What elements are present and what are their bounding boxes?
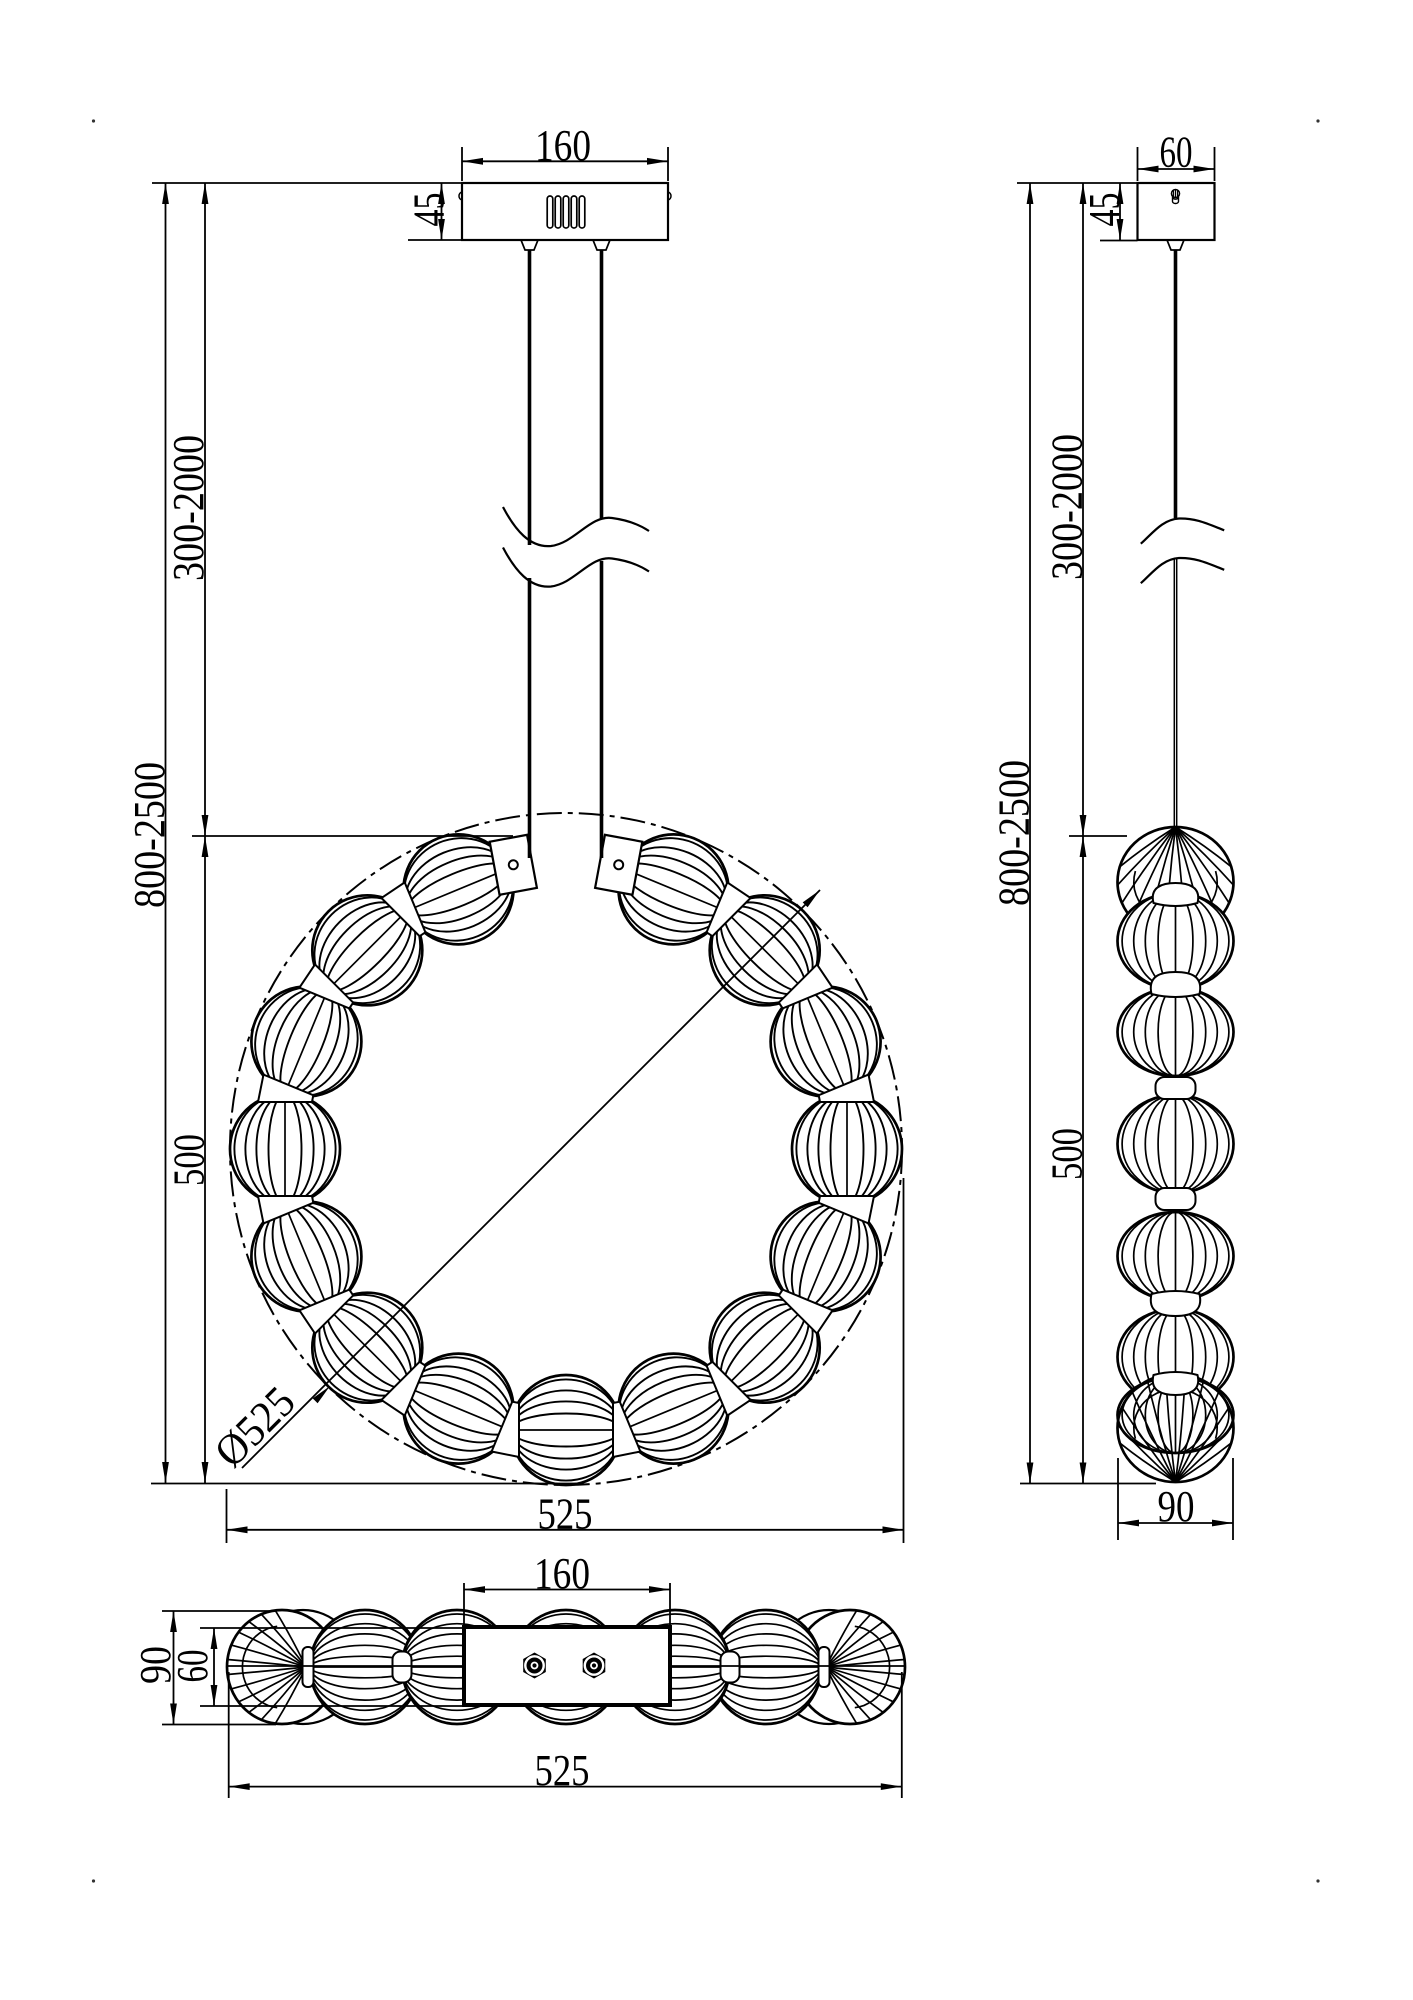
svg-text:500: 500	[165, 1134, 214, 1186]
svg-text:90: 90	[1158, 1482, 1195, 1531]
svg-text:300-2000: 300-2000	[1043, 434, 1092, 580]
svg-text:300-2000: 300-2000	[164, 435, 213, 581]
svg-text:500: 500	[1043, 1128, 1092, 1180]
svg-text:45: 45	[1080, 193, 1129, 227]
svg-text:45: 45	[405, 193, 454, 227]
svg-text:60: 60	[1160, 128, 1193, 177]
svg-text:160: 160	[535, 121, 591, 170]
svg-text:60: 60	[168, 1650, 217, 1683]
svg-text:800-2500: 800-2500	[125, 762, 174, 908]
svg-text:525: 525	[538, 1490, 593, 1539]
svg-text:160: 160	[534, 1549, 590, 1598]
svg-text:525: 525	[535, 1746, 590, 1795]
svg-text:800-2500: 800-2500	[990, 760, 1039, 906]
